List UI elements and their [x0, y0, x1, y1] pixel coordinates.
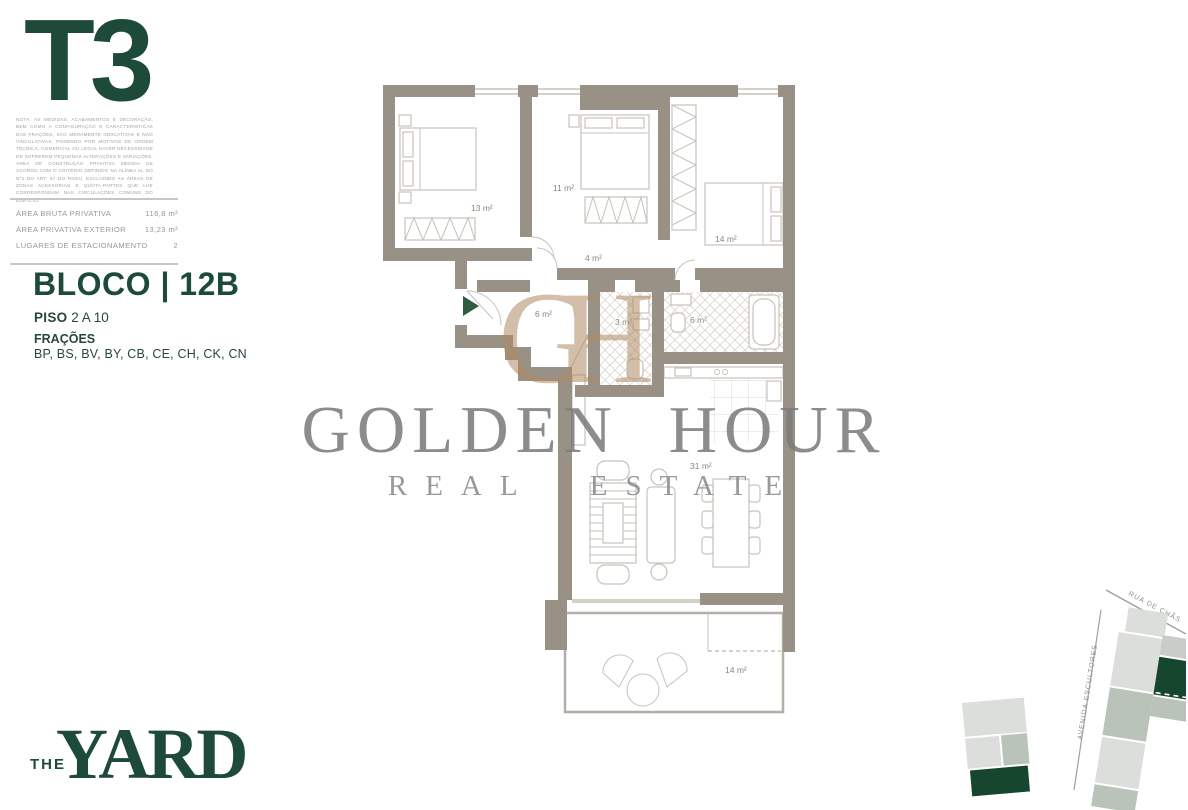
bathroom-2-fixtures: [664, 292, 783, 352]
brochure-page: T3 NOTA: AS MEDIDAS, ACABAMENTOS E DECOR…: [0, 0, 1188, 810]
spec-label: LUGARES DE ESTACIONAMENTO: [16, 241, 148, 250]
fracoes-value: BP, BS, BV, BY, CB, CE, CH, CK, CN: [34, 347, 247, 361]
piso-value: 2 A 10: [71, 310, 109, 325]
bed-1: [399, 115, 476, 203]
site-location-map: RUA DE CHÃS AVENIDA ESCULTORES: [938, 572, 1186, 810]
room-label-bathroom-2: 6 m²: [690, 315, 707, 325]
piso-line: PISO 2 A 10: [34, 310, 109, 325]
bed-2: [569, 115, 649, 189]
divider-bottom: [10, 263, 178, 265]
golden-hour-monogram: GH: [498, 272, 621, 404]
watermark-subtitle: REAL ESTATE: [0, 470, 1188, 503]
room-label-bedroom-2: 11 m²: [553, 183, 574, 193]
spec-row-area-bruta: ÁREA BRUTA PRIVATIVA 116,8 m²: [16, 209, 178, 218]
spec-value: 116,8 m²: [145, 209, 178, 218]
logo-yard: YARD: [56, 718, 245, 790]
legal-disclaimer: NOTA: AS MEDIDAS, ACABAMENTOS E DECORAÇÃ…: [16, 116, 153, 204]
entrance-arrow-icon: [463, 296, 479, 316]
bloco-title: BLOCO | 12B: [33, 266, 239, 303]
spec-label: ÁREA BRUTA PRIVATIVA: [16, 209, 111, 218]
spec-value: 2: [173, 241, 178, 250]
typology-title: T3: [24, 2, 149, 118]
site-building-right: [1091, 606, 1186, 810]
wardrobe-2: [585, 197, 647, 223]
room-label-hall: 4 m²: [585, 253, 602, 263]
room-label-bedroom-3: 14 m²: [715, 234, 737, 244]
spec-value: 13,23 m²: [145, 225, 178, 234]
room-label-bedroom-1: 13 m²: [471, 203, 493, 213]
site-building-left: [962, 698, 1032, 797]
spec-row-area-exterior: ÁREA PRIVATIVA EXTERIOR 13,23 m²: [16, 225, 178, 234]
street-label-avenida-escultores: AVENIDA ESCULTORES: [1077, 644, 1099, 740]
spec-label: ÁREA PRIVATIVA EXTERIOR: [16, 225, 126, 234]
fracoes-label: FRAÇÕES: [34, 332, 95, 346]
watermark-title: GOLDEN HOUR: [0, 392, 1188, 469]
divider-top: [10, 198, 178, 200]
balcony: [565, 599, 783, 712]
room-label-balcony: 14 m²: [725, 665, 747, 675]
piso-label: PISO: [34, 310, 67, 325]
wardrobe-3: [672, 105, 696, 230]
spec-row-estacionamento: LUGARES DE ESTACIONAMENTO 2: [16, 241, 178, 250]
wardrobe-1: [405, 218, 475, 240]
